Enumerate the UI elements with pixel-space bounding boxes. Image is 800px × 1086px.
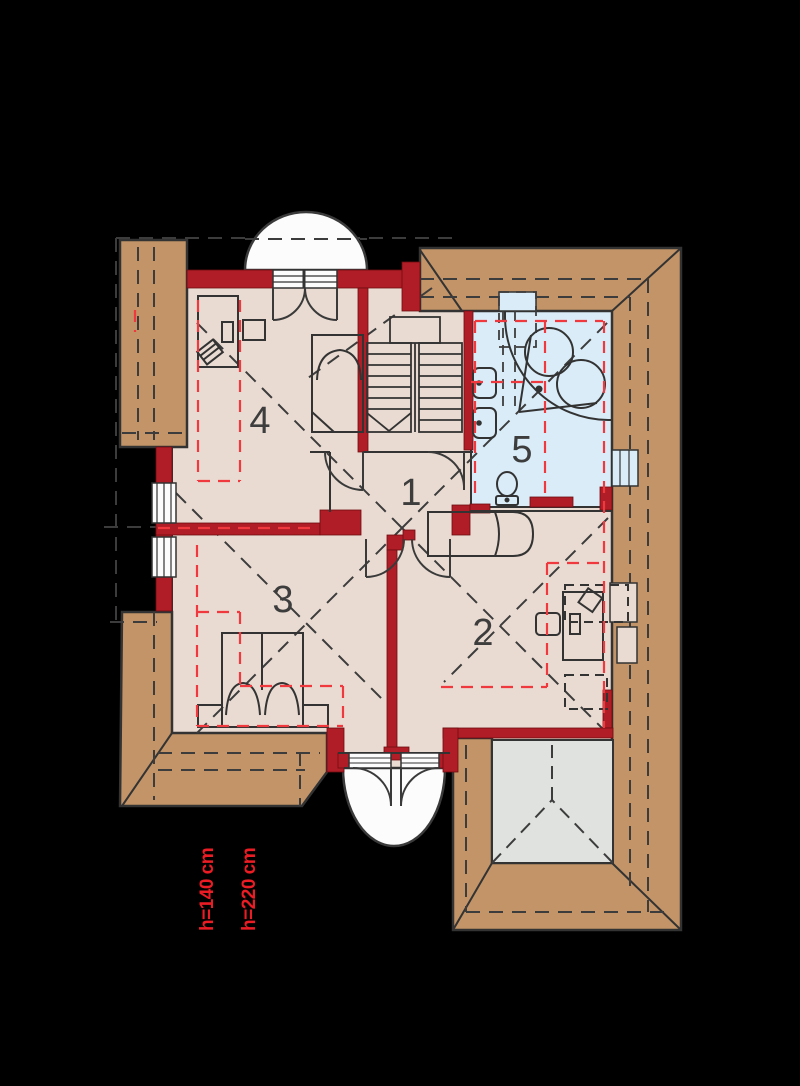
wall-bathroom-left [464,311,473,450]
wall-spine [387,550,397,748]
floor-plan-drawing: 4 1 5 3 2 h=140 cm h=220 cm [0,0,800,1086]
wall-top-right [337,270,404,288]
room-label-5: 5 [511,429,532,471]
balcony-top [245,212,367,270]
room-label-2: 2 [472,612,493,654]
room-label-3: 3 [272,579,293,621]
room-label-1: 1 [400,472,421,514]
wall-top-left [187,270,273,288]
height-label-220: h=220 cm [239,848,260,931]
room-label-4: 4 [249,400,270,442]
height-annotations: h=140 cm h=220 cm [197,848,260,931]
window-room3 [152,537,176,577]
balcony-bottom [343,768,445,846]
threshold-top [273,270,337,288]
garage-lower-roof [492,740,613,863]
window-bathroom [612,450,638,486]
wall-garage-top [443,728,613,738]
height-label-140: h=140 cm [197,848,218,931]
floor-plan-canvas: 4 1 5 3 2 h=140 cm h=220 cm [0,0,800,1086]
window-room4 [152,483,176,523]
